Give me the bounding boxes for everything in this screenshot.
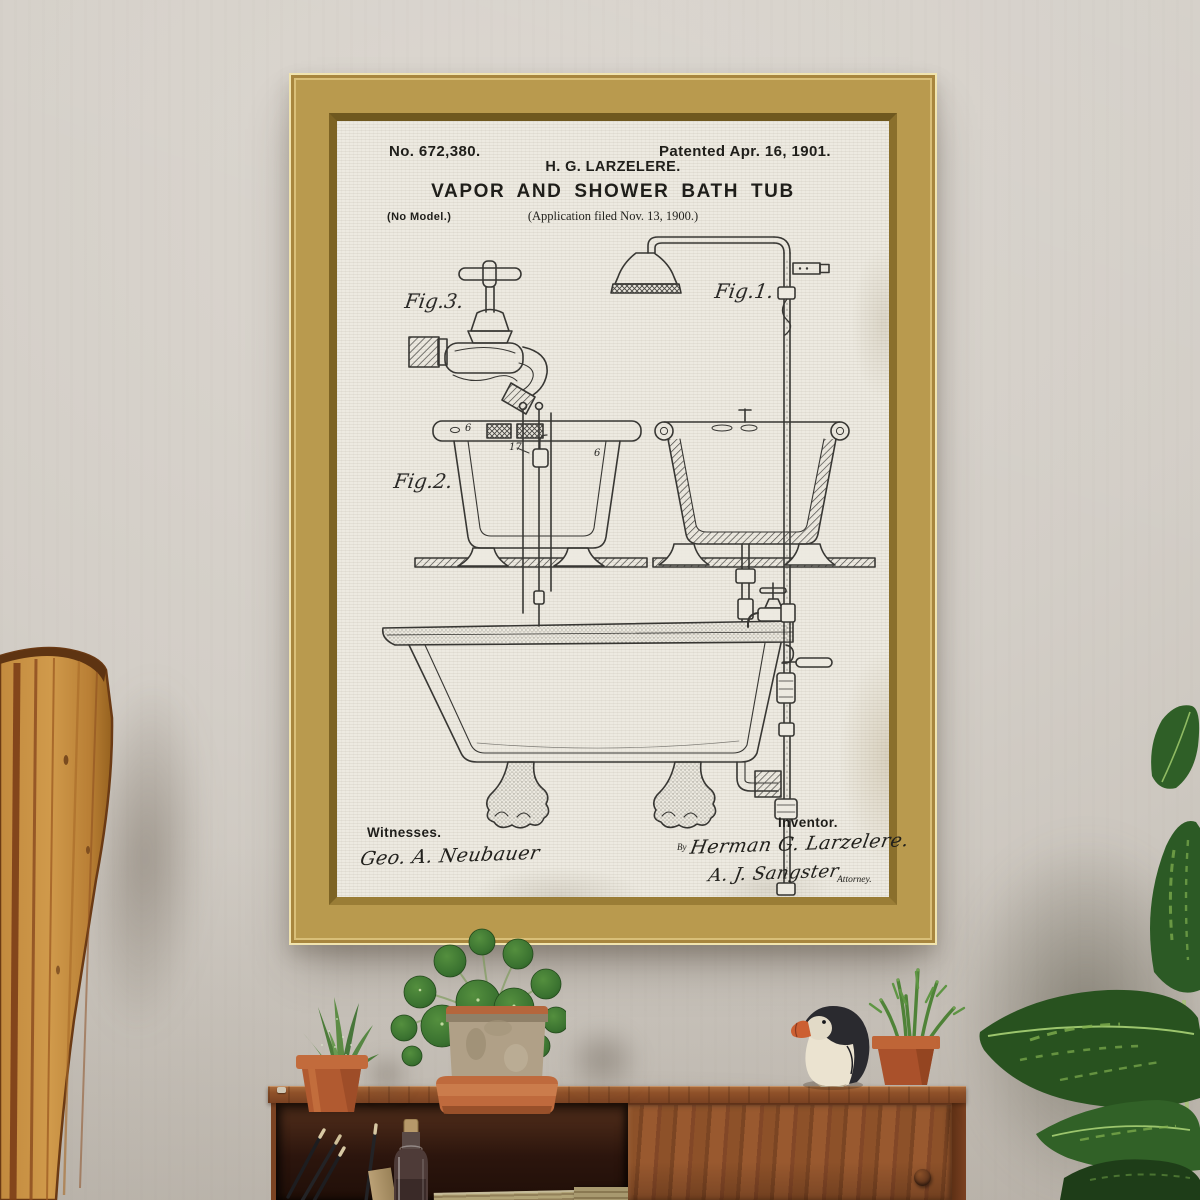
inventor-signature: Herman G. Larzelere. [688,829,910,859]
fig3-faucet [409,261,547,414]
ref-6-left: 6 [465,423,471,434]
picture-frame: No. 672,380. Patented Apr. 16, 1901. H. … [289,73,937,945]
ref-17: 17 [509,442,522,453]
pilea-plant [386,928,566,1116]
notebook-stack [574,1187,628,1200]
fig2-tub-sections [415,403,875,627]
inventor-signature-line: By Herman G. Larzelere. [677,833,908,855]
wooden-paddle [0,640,130,1200]
witnesses-label: Witnesses. [367,825,441,840]
room-scene: No. 672,380. Patented Apr. 16, 1901. H. … [0,0,1200,1200]
aloe-plant [288,985,388,1115]
attorney-label: Attorney. [837,875,872,885]
cabinet-open-shelf [276,1103,628,1200]
aloe-pot [296,1055,368,1069]
inventor-label: Inventor. [778,815,838,830]
fig2-label: Fig.2. [392,469,454,493]
frame-liner: No. 672,380. Patented Apr. 16, 1901. H. … [329,113,897,905]
patent-canvas: No. 672,380. Patented Apr. 16, 1901. H. … [337,121,889,897]
fig3-label: Fig.3. [403,289,465,313]
hinge [277,1087,286,1093]
dieffenbachia-plant [940,700,1200,1200]
glass-bottle [384,1119,440,1200]
by-prefix: By [677,842,687,852]
ref-6-right: 6 [594,448,600,459]
fig1-label: Fig.1. [713,279,775,303]
pilea-pot [446,1006,548,1080]
pilea-saucer [436,1076,558,1114]
patent-figures-drawing [337,121,889,897]
dieffenbachia-leaves [980,705,1200,1200]
